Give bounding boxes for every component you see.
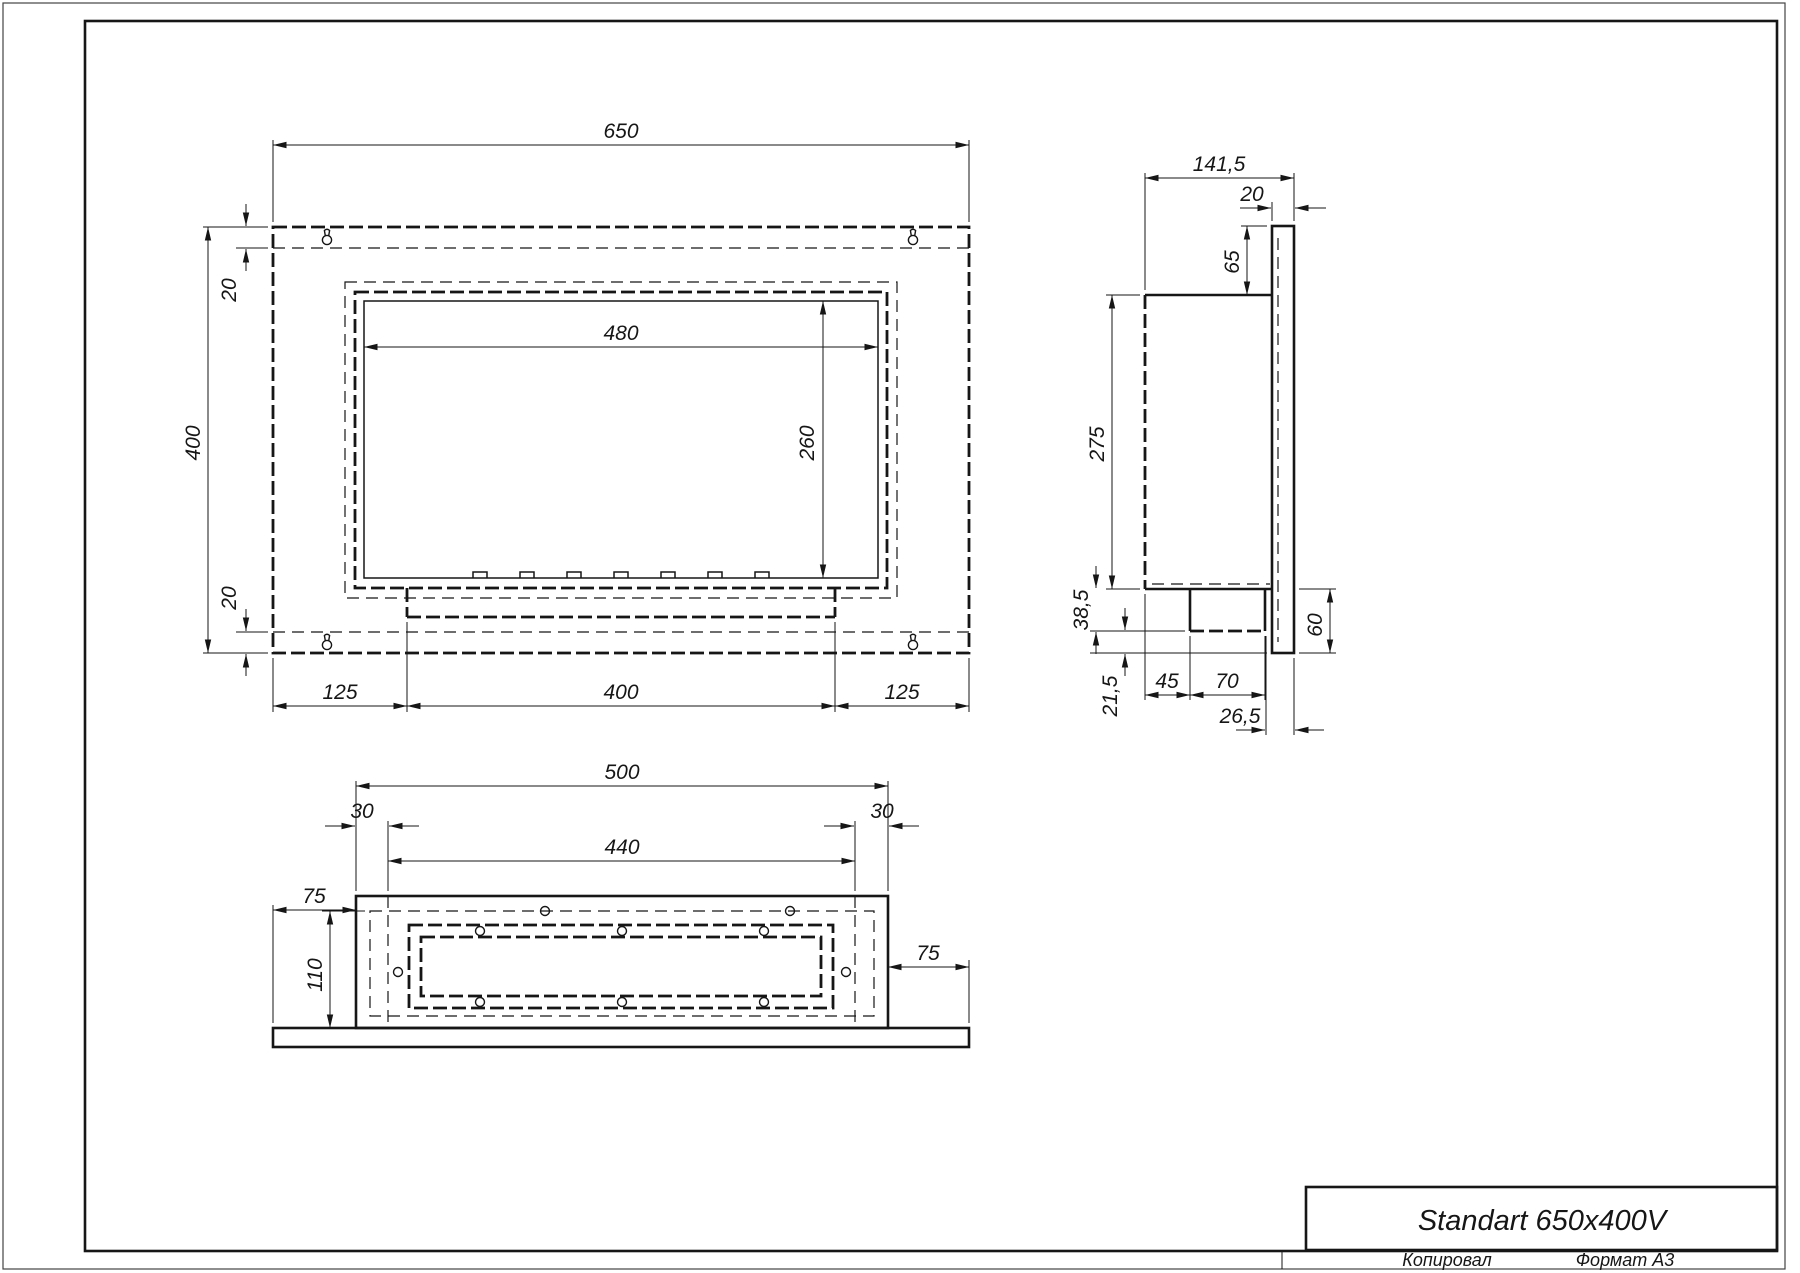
dim-side-top-inset: 65 — [1221, 250, 1244, 274]
dim-side-flange-bottom: 60 — [1304, 613, 1327, 637]
keyhole-slot-icon — [322, 229, 917, 649]
dim-front-offset-top: 20 — [218, 278, 241, 303]
front-dimensions: 650 400 20 20 480 260 — [182, 120, 969, 712]
dim-side-body-height: 275 — [1086, 426, 1109, 462]
title-block: Standart 650x400V Копировал Формат A3 — [1306, 1187, 1777, 1270]
dim-side-burner-offset: 45 — [1155, 670, 1179, 693]
footer-copied-label: Копировал — [1402, 1250, 1492, 1270]
dim-front-width: 650 — [603, 120, 638, 143]
side-view: 141,5 20 65 275 38,5 21,5 — [1070, 153, 1336, 735]
dim-bottom-flange-left: 75 — [302, 885, 326, 908]
dim-side-burner-depth: 70 — [1215, 670, 1239, 693]
drawing-canvas: 650 400 20 20 480 260 — [0, 0, 1800, 1273]
dim-bottom-inner-width: 440 — [604, 836, 639, 859]
dim-side-flange-thickness: 20 — [1239, 183, 1264, 206]
dim-bottom-lip-right: 30 — [870, 800, 894, 823]
dim-front-foot-left: 125 — [322, 681, 357, 704]
dim-front-foot-right: 125 — [884, 681, 919, 704]
footer-format-label: Формат A3 — [1576, 1250, 1675, 1270]
burner-notches — [473, 572, 769, 578]
front-view: 650 400 20 20 480 260 — [182, 120, 969, 712]
dim-side-bottom-lip: 21,5 — [1099, 675, 1122, 717]
side-flange — [1272, 226, 1294, 653]
dim-front-offset-bottom: 20 — [218, 586, 241, 611]
dim-front-foot-center: 400 — [603, 681, 638, 704]
dim-bottom-width: 500 — [604, 761, 639, 784]
dim-front-opening-width: 480 — [603, 322, 638, 345]
bottom-flange-strip — [273, 1028, 969, 1047]
sheet-frame — [3, 3, 1785, 1269]
dim-side-depth: 141,5 — [1193, 153, 1246, 176]
screw-hole-icon — [394, 907, 851, 1007]
dim-front-opening-height: 260 — [796, 425, 819, 461]
drawing-sheet: 650 400 20 20 480 260 — [0, 0, 1800, 1273]
bottom-dimensions: 500 30 30 440 75 75 110 — [273, 761, 969, 1028]
bottom-clamp-inner — [421, 937, 821, 996]
dim-bottom-lip-left: 30 — [350, 800, 374, 823]
dim-front-height: 400 — [182, 425, 205, 460]
product-title: Standart 650x400V — [1418, 1205, 1669, 1237]
bottom-view: 500 30 30 440 75 75 110 — [273, 761, 969, 1047]
dim-side-spigot-offset: 26,5 — [1219, 705, 1261, 728]
dim-bottom-inner-depth: 110 — [304, 958, 327, 992]
side-dimensions: 141,5 20 65 275 38,5 21,5 — [1070, 153, 1336, 735]
dim-bottom-flange-right: 75 — [916, 942, 940, 965]
dim-side-burner-height: 38,5 — [1070, 589, 1093, 630]
